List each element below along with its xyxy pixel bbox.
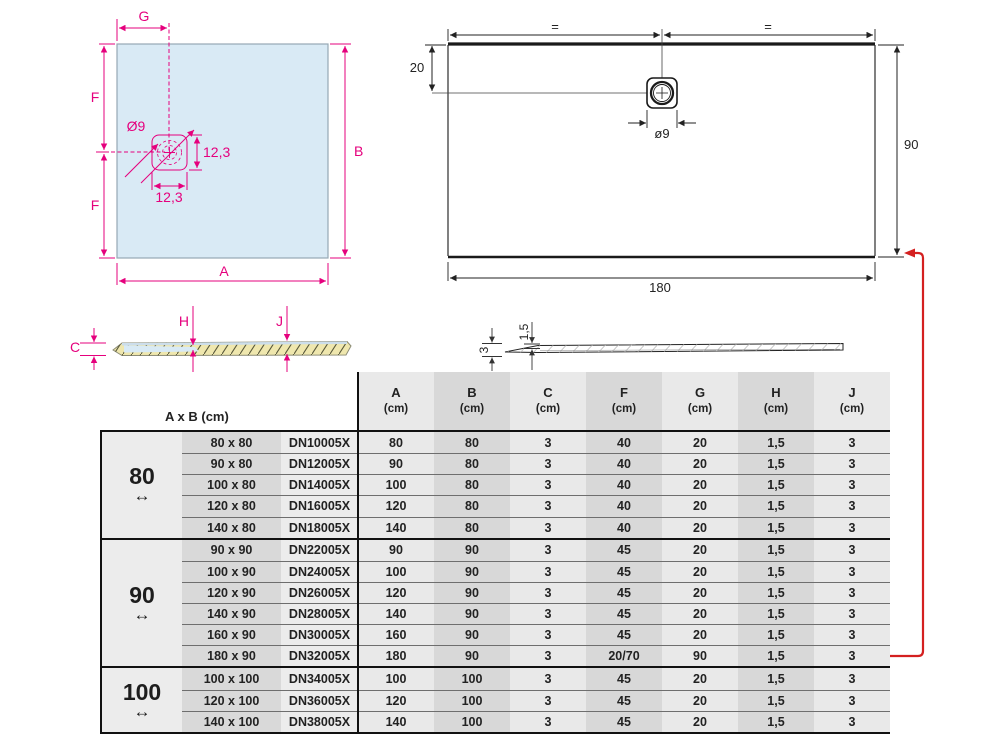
drain-diameter-label: Ø9 xyxy=(127,118,146,134)
cell-value: 3 xyxy=(814,690,890,711)
cell-value: 90 xyxy=(662,645,738,666)
cell-value: 3 xyxy=(510,603,586,624)
cell-value: 80 xyxy=(434,432,510,453)
cell-code: DN12005X xyxy=(281,453,358,474)
cell-value: 120 xyxy=(358,582,434,603)
cell-value: 1,5 xyxy=(738,711,814,732)
c-ticks xyxy=(80,343,106,356)
cell-value: 45 xyxy=(586,582,662,603)
col-unit: (cm) xyxy=(536,402,560,417)
cell-value: 80 xyxy=(358,432,434,453)
drain-width-label: 12,3 xyxy=(155,189,182,205)
cell-value: 20 xyxy=(662,453,738,474)
group-width-value: 80 xyxy=(129,465,155,488)
cell-code: DN22005X xyxy=(281,540,358,561)
cell-value: 80 xyxy=(434,453,510,474)
cell-value: 40 xyxy=(586,474,662,495)
cell-value: 20 xyxy=(662,517,738,538)
cell-value: 20 xyxy=(662,711,738,732)
col-letter: G xyxy=(695,385,705,402)
cell-value: 20 xyxy=(662,474,738,495)
cell-code: DN32005X xyxy=(281,645,358,666)
spec-table: A x B (cm) A(cm) B(cm) C(cm) F(cm) G(cm)… xyxy=(100,372,890,734)
cell-value: 140 xyxy=(358,517,434,538)
table-group-80: 80↔80 x 80DN10005X8080340201,5390 x 80DN… xyxy=(102,432,890,538)
cell-value: 3 xyxy=(510,582,586,603)
col-header-a: A(cm) xyxy=(358,372,434,430)
group-width-cell: 80↔ xyxy=(102,432,182,538)
cell-value: 3 xyxy=(510,711,586,732)
cell-value: 20 xyxy=(662,540,738,561)
cell-value: 80 xyxy=(434,517,510,538)
width-arrow-icon: ↔ xyxy=(134,487,151,504)
group-width-cell: 100↔ xyxy=(102,668,182,731)
cell-value: 3 xyxy=(814,432,890,453)
table-header: A x B (cm) A(cm) B(cm) C(cm) F(cm) G(cm)… xyxy=(100,372,890,430)
cell-value: 20 xyxy=(662,624,738,645)
cell-value: 80 xyxy=(434,474,510,495)
cell-value: 3 xyxy=(814,495,890,516)
col-header-c: C(cm) xyxy=(510,372,586,430)
cell-dimension: 90 x 80 xyxy=(182,453,281,474)
cell-value: 3 xyxy=(814,711,890,732)
cell-value: 160 xyxy=(358,624,434,645)
cell-value: 20 xyxy=(662,690,738,711)
cell-value: 3 xyxy=(814,603,890,624)
cell-value: 3 xyxy=(510,540,586,561)
cell-value: 3 xyxy=(510,645,586,666)
col-letter: C xyxy=(543,385,552,402)
section-view-chj: C H J xyxy=(60,298,380,376)
cell-value: 45 xyxy=(586,561,662,582)
cell-value: 3 xyxy=(510,432,586,453)
col-header-j: J(cm) xyxy=(814,372,890,430)
col-unit: (cm) xyxy=(840,402,864,417)
cell-value: 1,5 xyxy=(738,540,814,561)
cell-dimension: 80 x 80 xyxy=(182,432,281,453)
cell-value: 100 xyxy=(434,668,510,689)
cell-code: DN24005X xyxy=(281,561,358,582)
drain xyxy=(647,78,677,108)
offset-top-label: 20 xyxy=(410,60,424,75)
cell-value: 3 xyxy=(814,668,890,689)
cell-value: 3 xyxy=(814,540,890,561)
cell-value: 1,5 xyxy=(738,645,814,666)
col-unit: (cm) xyxy=(688,402,712,417)
tray-section-profile xyxy=(113,342,351,356)
cell-dimension: 140 x 80 xyxy=(182,517,281,538)
dim-label-g: G xyxy=(139,8,150,24)
tray-outline xyxy=(448,44,875,257)
cell-value: 1,5 xyxy=(738,495,814,516)
cell-value: 100 xyxy=(434,711,510,732)
cell-dimension: 180 x 90 xyxy=(182,645,281,666)
cell-value: 3 xyxy=(814,453,890,474)
cell-value: 3 xyxy=(814,561,890,582)
cell-value: 20 xyxy=(662,582,738,603)
col-letter: F xyxy=(620,385,628,402)
width-arrow-icon: ↔ xyxy=(134,703,151,720)
cell-value: 100 xyxy=(358,561,434,582)
drain-height-label: 12,3 xyxy=(203,144,230,160)
cell-value: 1,5 xyxy=(738,603,814,624)
col-unit: (cm) xyxy=(460,402,484,417)
cell-value: 3 xyxy=(814,645,890,666)
cell-value: 20 xyxy=(662,668,738,689)
arrowhead-top xyxy=(904,249,915,258)
cell-value: 1,5 xyxy=(738,624,814,645)
section-arrows xyxy=(94,306,287,372)
cell-value: 45 xyxy=(586,540,662,561)
cell-code: DN36005X xyxy=(281,690,358,711)
cell-value: 100 xyxy=(434,690,510,711)
cell-value: 1,5 xyxy=(738,690,814,711)
table-group-100: 100↔100 x 100DN34005X100100345201,53120 … xyxy=(102,666,890,731)
cell-value: 3 xyxy=(510,561,586,582)
col-unit: (cm) xyxy=(612,402,636,417)
cell-value: 3 xyxy=(814,517,890,538)
col-unit: (cm) xyxy=(764,402,788,417)
cell-value: 40 xyxy=(586,453,662,474)
width-label: 180 xyxy=(649,280,671,295)
cell-value: 1,5 xyxy=(738,668,814,689)
cell-value: 100 xyxy=(358,668,434,689)
dim-label-h: H xyxy=(179,313,189,329)
cell-value: 1,5 xyxy=(738,474,814,495)
cell-value: 90 xyxy=(358,540,434,561)
tray-section-profile xyxy=(505,344,843,353)
cell-dimension: 90 x 90 xyxy=(182,540,281,561)
cell-value: 20/70 xyxy=(586,645,662,666)
cell-code: DN18005X xyxy=(281,517,358,538)
col-header-b: B(cm) xyxy=(434,372,510,430)
cell-code: DN30005X xyxy=(281,624,358,645)
cell-value: 40 xyxy=(586,517,662,538)
dim-label-c: C xyxy=(70,339,80,355)
col-header-h: H(cm) xyxy=(738,372,814,430)
dim-label-b: B xyxy=(354,143,363,159)
col-letter: A xyxy=(391,385,400,402)
cell-value: 90 xyxy=(358,453,434,474)
cell-dimension: 120 x 80 xyxy=(182,495,281,516)
cell-value: 20 xyxy=(662,495,738,516)
cell-value: 40 xyxy=(586,432,662,453)
cell-value: 40 xyxy=(586,495,662,516)
col-unit: (cm) xyxy=(384,402,408,417)
cell-value: 140 xyxy=(358,711,434,732)
equal-right-label: = xyxy=(764,19,772,34)
cell-value: 3 xyxy=(510,495,586,516)
col-letter: B xyxy=(467,385,476,402)
cell-dimension: 120 x 90 xyxy=(182,582,281,603)
cell-dimension: 100 x 90 xyxy=(182,561,281,582)
table-divider-line xyxy=(357,372,359,734)
cell-value: 45 xyxy=(586,603,662,624)
cell-value: 45 xyxy=(586,668,662,689)
cell-value: 20 xyxy=(662,561,738,582)
cell-code: DN28005X xyxy=(281,603,358,624)
cell-value: 45 xyxy=(586,624,662,645)
centerlines xyxy=(432,29,662,108)
col-header-f: F(cm) xyxy=(586,372,662,430)
dim-label-lip: 1,5 xyxy=(517,323,531,340)
extension-lines xyxy=(425,29,904,281)
cell-value: 90 xyxy=(434,624,510,645)
cell-dimension: 140 x 90 xyxy=(182,603,281,624)
cell-value: 1,5 xyxy=(738,453,814,474)
cell-value: 120 xyxy=(358,690,434,711)
cell-code: DN16005X xyxy=(281,495,358,516)
cell-value: 140 xyxy=(358,603,434,624)
cell-code: DN38005X xyxy=(281,711,358,732)
height-label: 90 xyxy=(904,137,918,152)
group-width-cell: 90↔ xyxy=(102,540,182,667)
cell-value: 90 xyxy=(434,603,510,624)
cell-value: 90 xyxy=(434,645,510,666)
equal-left-label: = xyxy=(551,19,559,34)
cell-value: 3 xyxy=(814,474,890,495)
cell-value: 1,5 xyxy=(738,432,814,453)
cell-value: 45 xyxy=(586,711,662,732)
cell-value: 3 xyxy=(510,474,586,495)
cell-value: 20 xyxy=(662,603,738,624)
dim-label-f-top: F xyxy=(91,89,100,105)
cell-value: 3 xyxy=(510,668,586,689)
cell-value: 20 xyxy=(662,432,738,453)
cell-dimension: 160 x 90 xyxy=(182,624,281,645)
cell-dimension: 100 x 100 xyxy=(182,668,281,689)
cell-dimension: 120 x 100 xyxy=(182,690,281,711)
cell-value: 3 xyxy=(510,690,586,711)
group-width-value: 90 xyxy=(129,584,155,607)
cell-value: 3 xyxy=(814,624,890,645)
cell-value: 45 xyxy=(586,690,662,711)
cell-code: DN34005X xyxy=(281,668,358,689)
col-header-g: G(cm) xyxy=(662,372,738,430)
ab-header: A x B (cm) xyxy=(102,372,358,430)
cell-value: 120 xyxy=(358,495,434,516)
cell-value: 100 xyxy=(358,474,434,495)
cell-value: 90 xyxy=(434,582,510,603)
cell-value: 3 xyxy=(510,453,586,474)
cell-value: 90 xyxy=(434,540,510,561)
cell-value: 3 xyxy=(510,517,586,538)
cell-dimension: 140 x 100 xyxy=(182,711,281,732)
table-group-90: 90↔90 x 90DN22005X9090345201,53100 x 90D… xyxy=(102,538,890,667)
cell-value: 80 xyxy=(434,495,510,516)
cell-value: 90 xyxy=(434,561,510,582)
cell-dimension: 100 x 80 xyxy=(182,474,281,495)
dimension-lines xyxy=(432,35,897,278)
dim-label-j: J xyxy=(276,313,283,329)
width-arrow-icon: ↔ xyxy=(134,606,151,623)
cell-value: 1,5 xyxy=(738,517,814,538)
dim-label-a: A xyxy=(219,263,229,279)
dim-label-thickness: 3 xyxy=(477,346,491,353)
cell-code: DN10005X xyxy=(281,432,358,453)
cell-value: 1,5 xyxy=(738,561,814,582)
cell-value: 1,5 xyxy=(738,582,814,603)
drain-diameter-label: ø9 xyxy=(654,126,669,141)
col-letter: H xyxy=(771,385,780,402)
group-width-value: 100 xyxy=(123,681,161,704)
cell-value: 3 xyxy=(814,582,890,603)
dim-label-f-bottom: F xyxy=(91,197,100,213)
section-view-thickness: 3 1,5 xyxy=(480,298,880,376)
cell-value: 180 xyxy=(358,645,434,666)
col-letter: J xyxy=(848,385,855,402)
table-body: 80↔80 x 80DN10005X8080340201,5390 x 80DN… xyxy=(100,430,890,734)
cell-code: DN26005X xyxy=(281,582,358,603)
square-top-view-diagram: G F F B A Ø9 12,3 12,3 xyxy=(85,5,365,297)
cell-value: 3 xyxy=(510,624,586,645)
cell-code: DN14005X xyxy=(281,474,358,495)
